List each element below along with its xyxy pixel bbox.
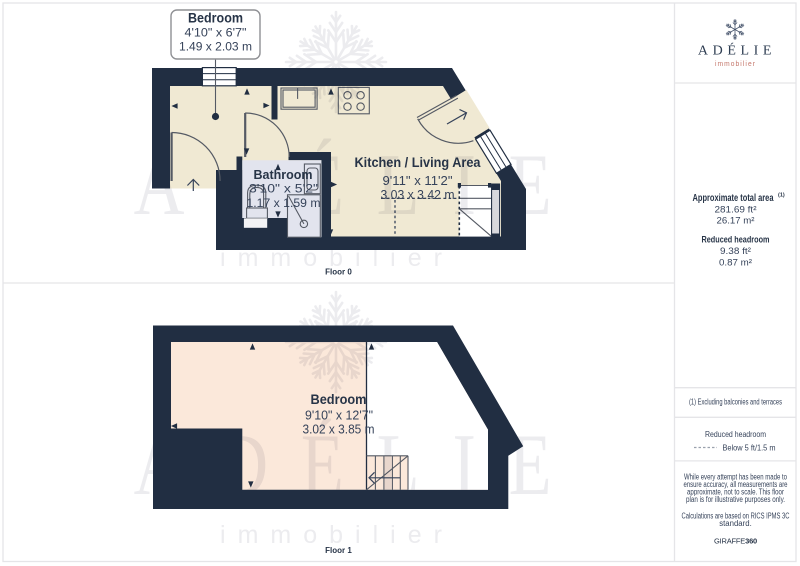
svg-text:1.49 x 2.03 m: 1.49 x 2.03 m xyxy=(179,39,252,53)
svg-text:26.17 m²: 26.17 m² xyxy=(717,216,755,227)
svg-text:Below 5 ft/1.5 m: Below 5 ft/1.5 m xyxy=(723,444,776,453)
svg-text:Reduced headroom: Reduced headroom xyxy=(705,429,766,439)
svg-text:ADÉLIE: ADÉLIE xyxy=(698,42,776,59)
svg-text:plan is for illustrative purpo: plan is for illustrative purposes only. xyxy=(686,495,785,504)
svg-text:(1): (1) xyxy=(778,193,785,199)
svg-text:0.87 m²: 0.87 m² xyxy=(719,258,752,269)
svg-text:Floor 0: Floor 0 xyxy=(325,267,352,276)
svg-text:immobilier: immobilier xyxy=(220,521,454,549)
svg-text:281.69 ft²: 281.69 ft² xyxy=(715,205,757,216)
svg-text:standard.: standard. xyxy=(719,519,752,528)
svg-text:3'10" x 5'2": 3'10" x 5'2" xyxy=(249,182,318,196)
svg-text:Bedroom: Bedroom xyxy=(311,392,367,407)
svg-text:immobilier: immobilier xyxy=(715,59,756,68)
svg-text:Bedroom: Bedroom xyxy=(188,11,243,26)
svg-text:(1) Excluding balconies and te: (1) Excluding balconies and terraces xyxy=(689,398,782,407)
svg-text:9.38 ft²: 9.38 ft² xyxy=(720,246,751,257)
svg-text:Reduced headroom: Reduced headroom xyxy=(702,235,770,246)
svg-text:GIRAFFE360: GIRAFFE360 xyxy=(714,537,757,546)
svg-text:4'10" x 6'7": 4'10" x 6'7" xyxy=(185,25,247,39)
svg-text:Floor 1: Floor 1 xyxy=(325,546,352,555)
svg-text:1.17 x 1.59 m: 1.17 x 1.59 m xyxy=(247,196,321,210)
svg-text:Bathroom: Bathroom xyxy=(254,167,313,182)
svg-text:Approximate total area: Approximate total area xyxy=(693,193,774,204)
